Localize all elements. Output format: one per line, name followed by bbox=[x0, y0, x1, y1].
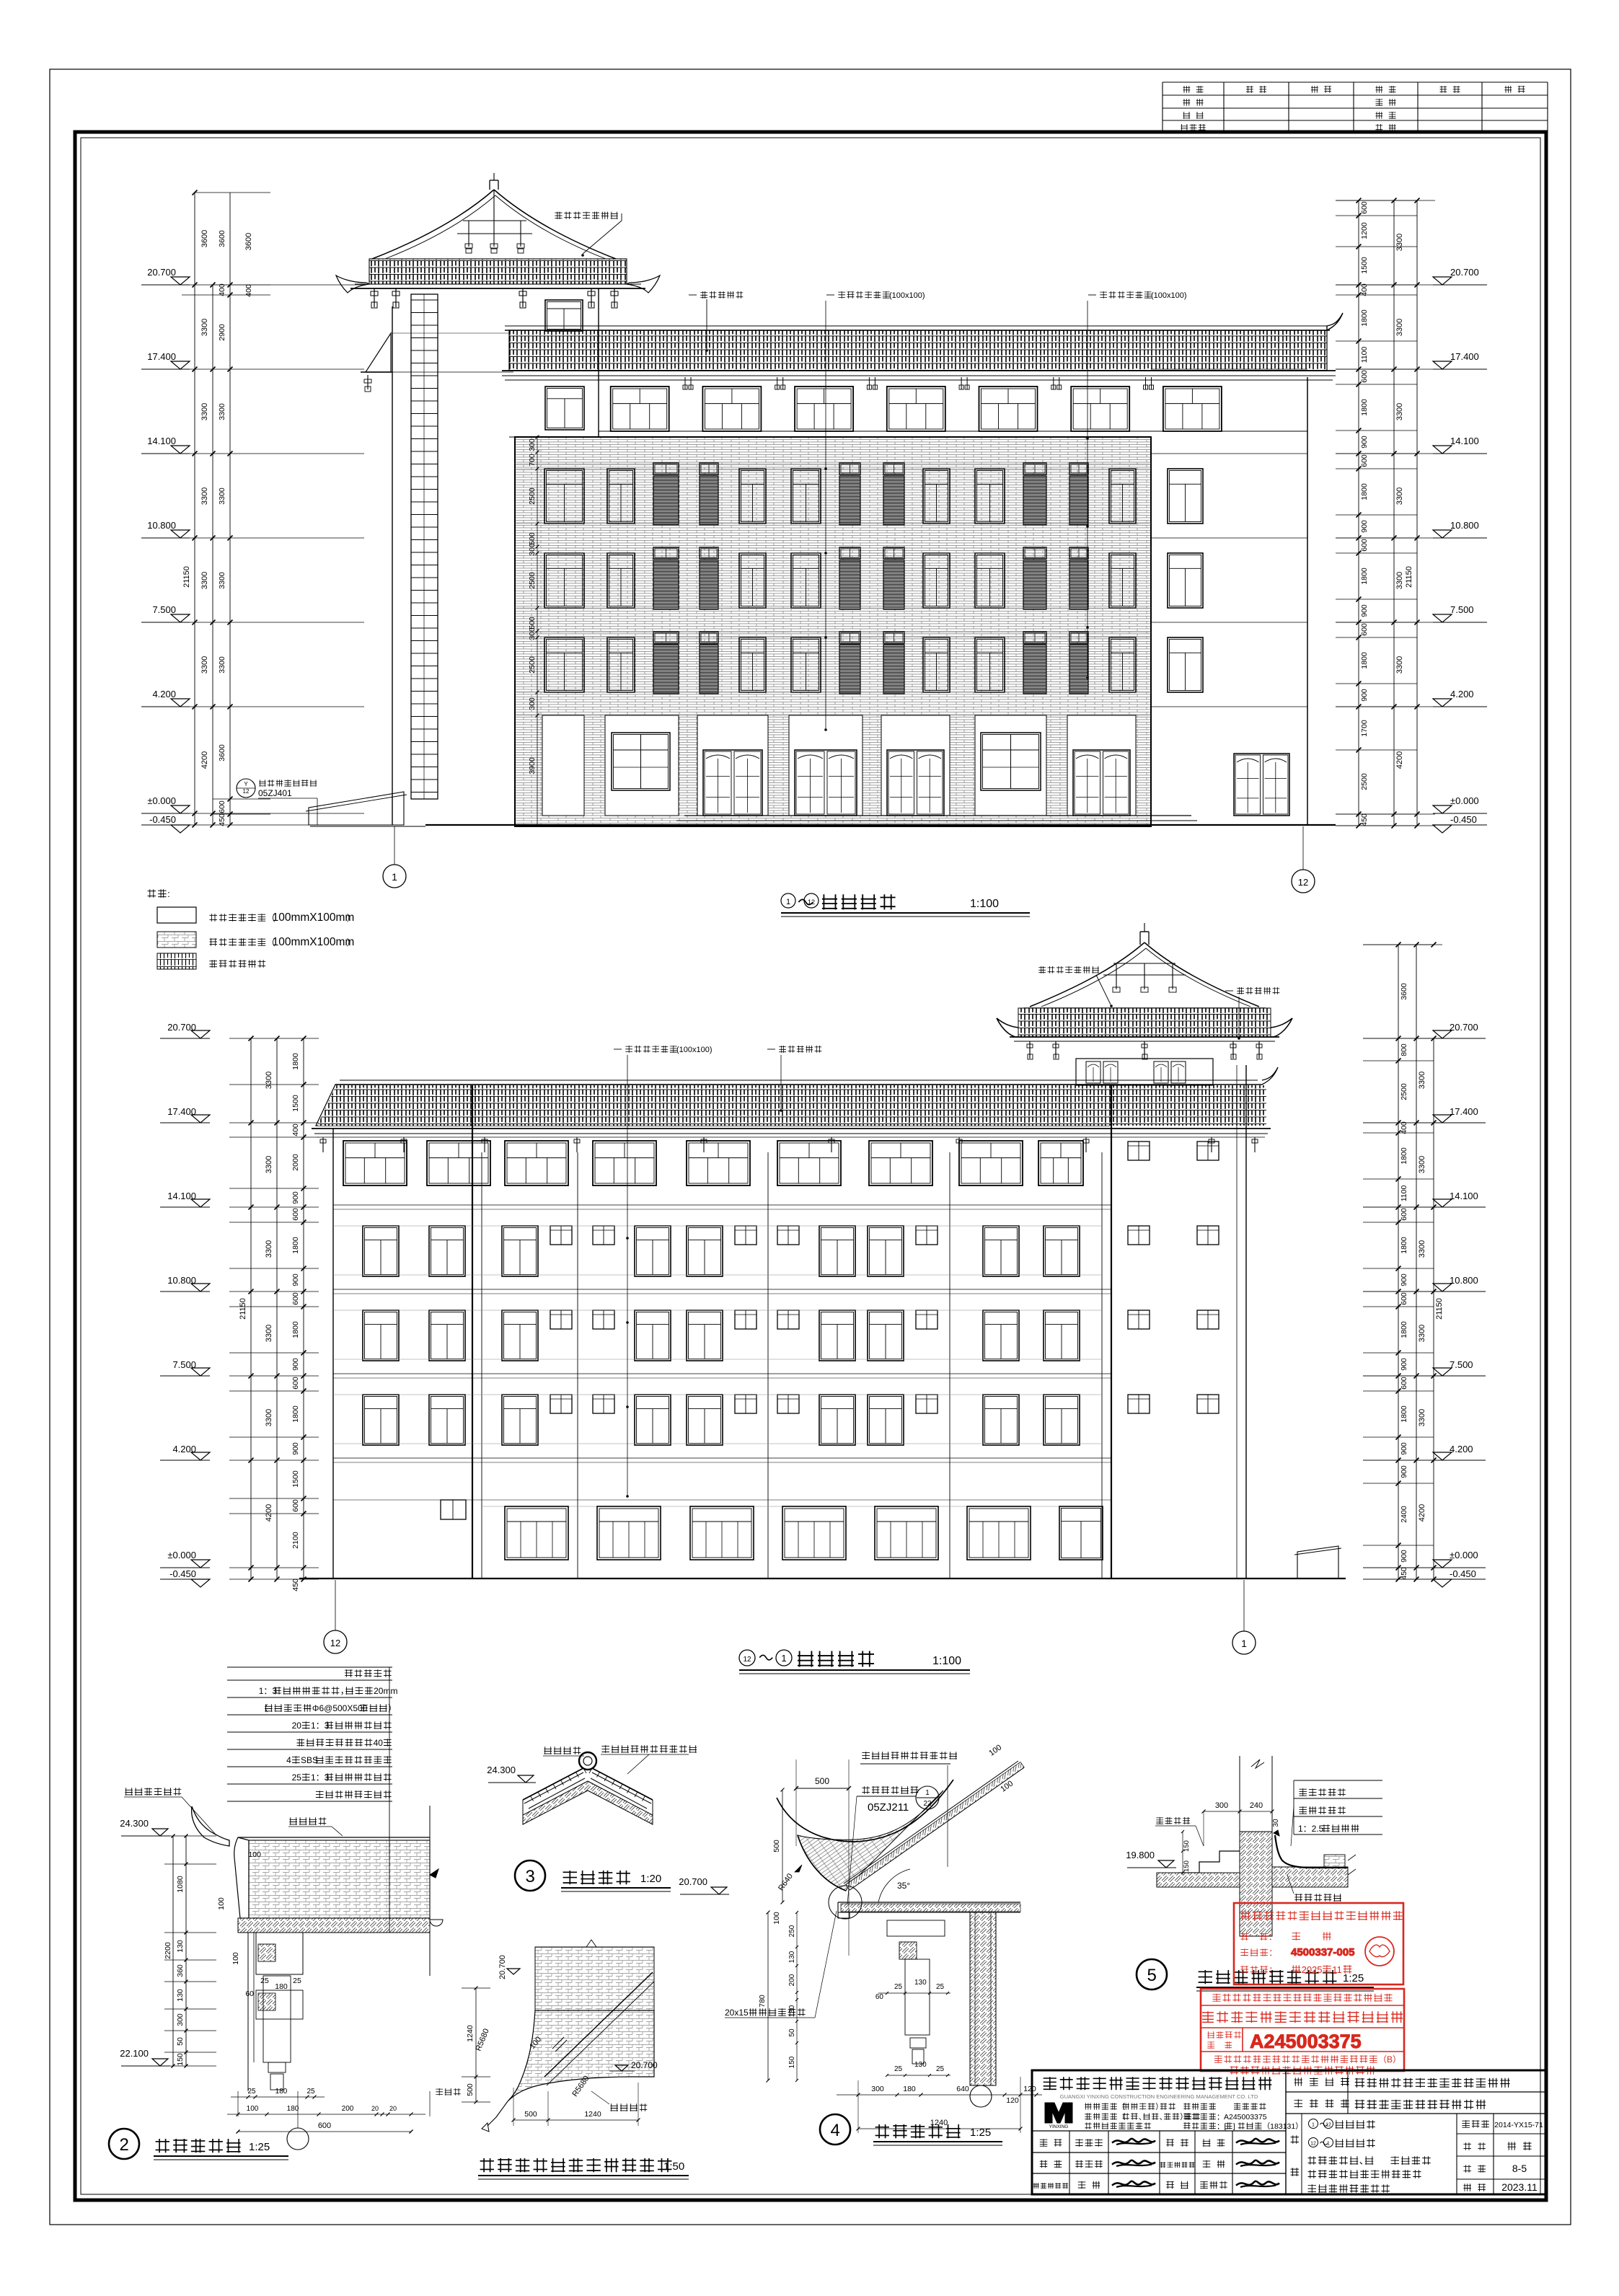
svg-text:360: 360 bbox=[176, 1964, 185, 1977]
svg-text:±0.000: ±0.000 bbox=[167, 1550, 196, 1560]
svg-text:900: 900 bbox=[1400, 1273, 1408, 1286]
svg-text:25: 25 bbox=[247, 2088, 256, 2096]
svg-text:100: 100 bbox=[247, 2105, 259, 2113]
svg-text:900: 900 bbox=[1400, 1358, 1408, 1371]
svg-text:2500: 2500 bbox=[1360, 773, 1369, 790]
svg-text:22.100: 22.100 bbox=[120, 2048, 149, 2059]
svg-text:100: 100 bbox=[217, 1897, 226, 1910]
svg-text:100: 100 bbox=[772, 1912, 781, 1925]
svg-text:GUANGXI YINXING CONSTRUCTION E: GUANGXI YINXING CONSTRUCTION ENGINEERING… bbox=[1060, 2093, 1258, 2100]
svg-text:1800: 1800 bbox=[1360, 483, 1369, 500]
svg-text:3600: 3600 bbox=[218, 230, 226, 247]
svg-text:900: 900 bbox=[291, 1442, 300, 1455]
svg-text:2014-YX15-71: 2014-YX15-71 bbox=[1494, 2121, 1543, 2129]
svg-text:1：3: 1：3 bbox=[311, 1721, 330, 1731]
svg-text:800: 800 bbox=[1400, 1043, 1408, 1056]
svg-text:1:25: 1:25 bbox=[249, 2141, 270, 2153]
svg-text:3300: 3300 bbox=[218, 403, 226, 420]
svg-text:1:100: 1:100 bbox=[970, 898, 999, 910]
svg-text:1:20: 1:20 bbox=[640, 1873, 661, 1885]
svg-text:3300: 3300 bbox=[1418, 1409, 1426, 1426]
svg-text:900: 900 bbox=[1400, 1550, 1408, 1563]
svg-text:19.800: 19.800 bbox=[1126, 1850, 1155, 1860]
svg-text:400: 400 bbox=[218, 283, 226, 296]
svg-text:-0.450: -0.450 bbox=[1450, 1568, 1476, 1579]
svg-text:1800: 1800 bbox=[1400, 1321, 1408, 1338]
svg-text:：: ： bbox=[1217, 2113, 1225, 2121]
svg-text:8-5: 8-5 bbox=[1512, 2163, 1527, 2174]
svg-text:1100: 1100 bbox=[1400, 1185, 1408, 1202]
svg-text:300: 300 bbox=[1215, 1801, 1228, 1810]
svg-text:200: 200 bbox=[342, 2105, 354, 2113]
svg-text:300: 300 bbox=[871, 2085, 884, 2093]
svg-text:12: 12 bbox=[1298, 877, 1308, 888]
svg-text:21150: 21150 bbox=[239, 1298, 247, 1320]
svg-text:1：3: 1：3 bbox=[311, 1772, 330, 1783]
svg-text:600: 600 bbox=[1360, 201, 1369, 214]
svg-text:450: 450 bbox=[218, 813, 226, 826]
svg-text:130: 130 bbox=[176, 1940, 185, 1953]
svg-text:25: 25 bbox=[260, 1977, 269, 1985]
svg-text:、: 、 bbox=[1359, 2155, 1369, 2166]
svg-text:1800: 1800 bbox=[1360, 568, 1369, 585]
svg-text:4500337-005: 4500337-005 bbox=[1291, 1946, 1354, 1959]
svg-text:1：2.5: 1：2.5 bbox=[1298, 1824, 1324, 1834]
svg-text:450: 450 bbox=[1400, 1567, 1408, 1580]
svg-text:1:25: 1:25 bbox=[970, 2127, 991, 2139]
svg-text:5: 5 bbox=[1147, 1966, 1157, 1985]
svg-text:240: 240 bbox=[1250, 1801, 1263, 1810]
svg-text:(100x100): (100x100) bbox=[889, 291, 925, 300]
svg-text:500: 500 bbox=[524, 2110, 537, 2119]
svg-text:14.100: 14.100 bbox=[1450, 436, 1479, 446]
svg-text:1: 1 bbox=[1312, 2123, 1315, 2128]
svg-text:600: 600 bbox=[1360, 370, 1369, 383]
svg-text:1800: 1800 bbox=[1400, 1405, 1408, 1423]
svg-text:900: 900 bbox=[1360, 520, 1369, 533]
svg-text:12: 12 bbox=[243, 788, 250, 795]
svg-text:）: ） bbox=[347, 913, 356, 923]
svg-text:3300: 3300 bbox=[265, 1409, 273, 1426]
svg-text:3: 3 bbox=[526, 1867, 535, 1886]
svg-text:150: 150 bbox=[788, 2056, 796, 2068]
svg-text:2500: 2500 bbox=[528, 487, 537, 505]
svg-text:21150: 21150 bbox=[1405, 566, 1413, 588]
svg-text:3900: 3900 bbox=[528, 757, 537, 774]
svg-text:1: 1 bbox=[925, 1789, 930, 1797]
svg-text:2500: 2500 bbox=[528, 572, 537, 589]
svg-text:05ZJ211: 05ZJ211 bbox=[868, 1801, 909, 1814]
svg-text:4200: 4200 bbox=[265, 1504, 273, 1522]
svg-text:25: 25 bbox=[936, 1983, 945, 1991]
svg-text:450: 450 bbox=[291, 1578, 300, 1591]
svg-text:600: 600 bbox=[291, 1499, 300, 1512]
svg-text:130: 130 bbox=[914, 1979, 927, 1987]
svg-text:12: 12 bbox=[808, 898, 815, 906]
svg-text:1240: 1240 bbox=[466, 2025, 475, 2042]
svg-text:7.500: 7.500 bbox=[1450, 1359, 1473, 1370]
svg-text:21150: 21150 bbox=[182, 566, 191, 588]
svg-text:130: 130 bbox=[788, 1951, 796, 1963]
svg-text:1: 1 bbox=[392, 871, 397, 883]
svg-text:25: 25 bbox=[936, 2065, 945, 2073]
svg-text:4.200: 4.200 bbox=[1450, 1444, 1473, 1454]
svg-text:1: 1 bbox=[1241, 1638, 1247, 1649]
svg-text:10.800: 10.800 bbox=[1450, 520, 1479, 531]
svg-text:600: 600 bbox=[1400, 1292, 1408, 1305]
svg-text:500: 500 bbox=[466, 2083, 475, 2096]
svg-text:4200: 4200 bbox=[200, 751, 209, 769]
svg-text:1800: 1800 bbox=[291, 1405, 300, 1423]
svg-text:1800: 1800 bbox=[1400, 1147, 1408, 1165]
svg-text:3300: 3300 bbox=[265, 1240, 273, 1258]
svg-text:±0.000: ±0.000 bbox=[147, 795, 176, 806]
svg-text:20: 20 bbox=[371, 2105, 379, 2112]
svg-text:25: 25 bbox=[894, 1983, 903, 1991]
svg-text:4200: 4200 bbox=[1395, 751, 1404, 769]
svg-text:4.200: 4.200 bbox=[1450, 689, 1474, 699]
svg-text:3300: 3300 bbox=[1395, 572, 1404, 589]
svg-text:4: 4 bbox=[286, 1755, 291, 1765]
svg-text:±0.000: ±0.000 bbox=[1450, 795, 1479, 806]
svg-text:640: 640 bbox=[956, 2085, 969, 2093]
svg-text:3300: 3300 bbox=[218, 487, 226, 505]
svg-text:1800: 1800 bbox=[1360, 399, 1369, 416]
svg-text:600: 600 bbox=[291, 1208, 300, 1221]
svg-text:100: 100 bbox=[248, 1850, 261, 1859]
svg-text:1:25: 1:25 bbox=[1343, 1972, 1364, 1984]
svg-text:3300: 3300 bbox=[200, 403, 209, 420]
svg-text:600: 600 bbox=[1400, 1208, 1408, 1221]
svg-text:20.700: 20.700 bbox=[679, 1876, 707, 1887]
svg-text:2500: 2500 bbox=[1400, 1083, 1408, 1100]
svg-text:500: 500 bbox=[815, 1776, 829, 1786]
svg-text:1:50: 1:50 bbox=[663, 2160, 684, 2173]
svg-text:130: 130 bbox=[176, 1989, 185, 2002]
svg-text:14.100: 14.100 bbox=[1450, 1191, 1478, 1201]
svg-text:180: 180 bbox=[275, 1982, 288, 1991]
svg-text:1080: 1080 bbox=[176, 1876, 185, 1893]
svg-text:(100x100): (100x100) bbox=[1151, 291, 1187, 300]
svg-text:：: ： bbox=[1269, 1948, 1277, 1958]
svg-text:200: 200 bbox=[788, 1974, 796, 1986]
svg-text:±0.000: ±0.000 bbox=[1450, 1550, 1478, 1560]
svg-text:600: 600 bbox=[1360, 454, 1369, 467]
svg-text:3300: 3300 bbox=[265, 1156, 273, 1173]
svg-text:）: ） bbox=[347, 937, 356, 948]
svg-text:50: 50 bbox=[176, 2037, 185, 2046]
svg-text:2200: 2200 bbox=[164, 1942, 172, 1959]
svg-text:25: 25 bbox=[293, 1977, 301, 1985]
svg-text:20.700: 20.700 bbox=[1450, 1022, 1478, 1033]
svg-text:4200: 4200 bbox=[1418, 1504, 1426, 1522]
svg-text:2: 2 bbox=[120, 2135, 129, 2155]
svg-text:900: 900 bbox=[1360, 689, 1369, 702]
svg-text:500: 500 bbox=[528, 532, 537, 545]
svg-text:（183131）: （183131） bbox=[1263, 2122, 1303, 2131]
svg-text:700: 700 bbox=[528, 454, 537, 467]
svg-text:4.200: 4.200 bbox=[172, 1444, 196, 1454]
svg-text:3300: 3300 bbox=[265, 1072, 273, 1089]
svg-text:1800: 1800 bbox=[291, 1237, 300, 1254]
svg-text:2100: 2100 bbox=[291, 1532, 300, 1549]
svg-text:3300: 3300 bbox=[200, 656, 209, 674]
svg-text:05ZJ401: 05ZJ401 bbox=[258, 788, 292, 798]
svg-text:Y: Y bbox=[244, 781, 248, 787]
svg-text:7.500: 7.500 bbox=[172, 1359, 196, 1370]
svg-text:1100: 1100 bbox=[1360, 347, 1369, 363]
svg-text:1:100: 1:100 bbox=[932, 1655, 961, 1667]
svg-text:2025: 2025 bbox=[1302, 1964, 1323, 1975]
svg-text:300: 300 bbox=[528, 697, 537, 710]
svg-text:3300: 3300 bbox=[218, 656, 226, 674]
svg-text:1: 1 bbox=[786, 898, 790, 906]
svg-text:1: 1 bbox=[781, 1653, 786, 1664]
svg-text:25: 25 bbox=[306, 2088, 315, 2096]
svg-text::: : bbox=[167, 888, 170, 899]
svg-text:3300: 3300 bbox=[1418, 1156, 1426, 1173]
svg-text:11: 11 bbox=[1332, 1964, 1342, 1975]
svg-text:35°: 35° bbox=[897, 1881, 910, 1891]
svg-text:3300: 3300 bbox=[1395, 319, 1404, 336]
svg-text:400: 400 bbox=[291, 1123, 300, 1136]
svg-text:-0.450: -0.450 bbox=[169, 1568, 196, 1579]
svg-text:20.700: 20.700 bbox=[147, 267, 176, 278]
svg-text:600: 600 bbox=[291, 1292, 300, 1305]
svg-text:2900: 2900 bbox=[218, 324, 226, 341]
svg-text:100: 100 bbox=[231, 1952, 240, 1965]
svg-text:1800: 1800 bbox=[291, 1053, 300, 1070]
svg-text:20mm: 20mm bbox=[374, 1686, 397, 1696]
svg-text:（B）: （B） bbox=[1378, 2054, 1401, 2065]
svg-text:3300: 3300 bbox=[1395, 403, 1404, 420]
svg-text:600: 600 bbox=[318, 2121, 331, 2130]
svg-text:400: 400 bbox=[1400, 1121, 1408, 1134]
svg-text:2023.11: 2023.11 bbox=[1501, 2181, 1538, 2193]
svg-text:1500: 1500 bbox=[291, 1470, 300, 1488]
svg-text:150: 150 bbox=[176, 2053, 185, 2066]
svg-text:Φ6@500X500: Φ6@500X500 bbox=[312, 1703, 368, 1713]
svg-text:3300: 3300 bbox=[1418, 1325, 1426, 1342]
svg-text:17.400: 17.400 bbox=[147, 351, 176, 362]
svg-text:1700: 1700 bbox=[1360, 720, 1369, 737]
svg-text:25: 25 bbox=[894, 2065, 903, 2073]
svg-text:7.500: 7.500 bbox=[152, 604, 176, 615]
svg-text:20x15: 20x15 bbox=[725, 2008, 749, 2018]
svg-text:22: 22 bbox=[923, 1800, 932, 1808]
svg-text:4.200: 4.200 bbox=[152, 689, 176, 699]
svg-text:900: 900 bbox=[1360, 436, 1369, 449]
svg-text:180: 180 bbox=[287, 2105, 299, 2113]
svg-text:600: 600 bbox=[1400, 1377, 1408, 1390]
svg-text:3300: 3300 bbox=[1395, 656, 1404, 674]
svg-text:7.500: 7.500 bbox=[1450, 604, 1474, 615]
svg-text:2500: 2500 bbox=[528, 656, 537, 674]
svg-text:780: 780 bbox=[758, 1995, 767, 2008]
svg-text:25: 25 bbox=[292, 1772, 302, 1783]
svg-text:12: 12 bbox=[743, 1656, 751, 1664]
svg-text:21150: 21150 bbox=[1435, 1298, 1444, 1320]
svg-text:17.400: 17.400 bbox=[1450, 1106, 1478, 1117]
svg-text:1500: 1500 bbox=[1360, 257, 1369, 274]
svg-text:3300: 3300 bbox=[265, 1325, 273, 1342]
svg-text:100mmX100mm: 100mmX100mm bbox=[273, 911, 355, 924]
svg-text:30: 30 bbox=[1272, 1819, 1280, 1827]
svg-text:20.700: 20.700 bbox=[1450, 267, 1479, 278]
svg-text:1: 1 bbox=[1327, 2142, 1330, 2147]
svg-text:14.100: 14.100 bbox=[147, 436, 176, 446]
svg-text:900: 900 bbox=[291, 1191, 300, 1204]
svg-text:1200: 1200 bbox=[1360, 222, 1369, 239]
svg-text:（: （ bbox=[260, 1703, 268, 1713]
svg-text:1800: 1800 bbox=[1360, 309, 1369, 327]
svg-text:1240: 1240 bbox=[584, 2110, 601, 2119]
svg-text:900: 900 bbox=[291, 1358, 300, 1371]
svg-text:3600: 3600 bbox=[200, 230, 209, 247]
svg-text:3300: 3300 bbox=[200, 319, 209, 336]
svg-text:600: 600 bbox=[218, 800, 226, 813]
svg-text:(100x100): (100x100) bbox=[676, 1046, 713, 1054]
svg-text:120: 120 bbox=[1006, 2096, 1019, 2105]
svg-text:：[: ：[ bbox=[1217, 2122, 1227, 2131]
svg-text:450: 450 bbox=[1360, 813, 1369, 826]
svg-text:180: 180 bbox=[903, 2085, 916, 2093]
svg-text:1800: 1800 bbox=[1400, 1237, 1408, 1254]
svg-text:A245003375: A245003375 bbox=[1224, 2113, 1267, 2121]
svg-text:300: 300 bbox=[528, 438, 537, 451]
svg-text:3300: 3300 bbox=[200, 572, 209, 589]
svg-text:60: 60 bbox=[875, 1993, 884, 2001]
svg-text:300: 300 bbox=[176, 2013, 185, 2026]
svg-text:40: 40 bbox=[374, 1738, 384, 1748]
svg-text:3300: 3300 bbox=[1395, 487, 1404, 505]
svg-text:900: 900 bbox=[1360, 604, 1369, 617]
svg-text:1：3: 1：3 bbox=[259, 1686, 278, 1696]
svg-text:250: 250 bbox=[788, 1925, 796, 1937]
svg-text:900: 900 bbox=[1400, 1465, 1408, 1478]
svg-text:4: 4 bbox=[831, 2121, 840, 2140]
svg-text:3600: 3600 bbox=[244, 233, 253, 250]
svg-text:A245003375: A245003375 bbox=[1250, 2031, 1362, 2052]
svg-text:3300: 3300 bbox=[200, 487, 209, 505]
svg-text:17.400: 17.400 bbox=[1450, 351, 1479, 362]
svg-text:SBS: SBS bbox=[301, 1755, 318, 1765]
svg-text:500: 500 bbox=[772, 1840, 781, 1853]
svg-text:180: 180 bbox=[275, 2088, 288, 2096]
svg-text:900: 900 bbox=[1400, 1442, 1408, 1455]
svg-text:500: 500 bbox=[528, 617, 537, 630]
svg-text:100mmX100mm: 100mmX100mm bbox=[273, 936, 355, 948]
svg-text:2400: 2400 bbox=[1400, 1506, 1408, 1523]
svg-text:120: 120 bbox=[1023, 2085, 1036, 2093]
svg-text:130: 130 bbox=[914, 2061, 927, 2069]
svg-text:20.700: 20.700 bbox=[498, 1955, 507, 1979]
svg-text:1800: 1800 bbox=[1360, 652, 1369, 669]
svg-text:-0.450: -0.450 bbox=[1450, 814, 1477, 825]
svg-text:24.300: 24.300 bbox=[120, 1818, 149, 1829]
svg-text:3300: 3300 bbox=[1418, 1240, 1426, 1258]
svg-text:20: 20 bbox=[389, 2105, 397, 2112]
svg-text:1500: 1500 bbox=[291, 1095, 300, 1112]
svg-text:3600: 3600 bbox=[1400, 983, 1408, 1000]
svg-text:60: 60 bbox=[245, 1990, 254, 1998]
svg-text:24.300: 24.300 bbox=[487, 1765, 516, 1775]
svg-text:YINXING: YINXING bbox=[1049, 2124, 1069, 2129]
svg-text:50: 50 bbox=[788, 2028, 796, 2037]
svg-text:12: 12 bbox=[330, 1638, 340, 1648]
svg-text:1800: 1800 bbox=[291, 1321, 300, 1338]
svg-text:3600: 3600 bbox=[218, 744, 226, 761]
svg-text:：: ： bbox=[1269, 1965, 1277, 1975]
svg-text:20: 20 bbox=[292, 1721, 302, 1731]
svg-text:-0.450: -0.450 bbox=[149, 814, 176, 825]
svg-text:600: 600 bbox=[1360, 539, 1369, 552]
svg-text:，: ， bbox=[340, 1686, 349, 1696]
svg-text:900: 900 bbox=[291, 1273, 300, 1286]
svg-text:10.800: 10.800 bbox=[1450, 1275, 1478, 1286]
svg-text:10.800: 10.800 bbox=[147, 520, 176, 531]
svg-text:3300: 3300 bbox=[1418, 1072, 1426, 1089]
svg-text:12: 12 bbox=[1325, 2123, 1331, 2128]
svg-text:400: 400 bbox=[1360, 283, 1369, 296]
svg-text:12: 12 bbox=[1310, 2142, 1316, 2147]
svg-text:3300: 3300 bbox=[218, 572, 226, 589]
svg-text:150: 150 bbox=[1183, 1860, 1191, 1872]
svg-text:600: 600 bbox=[1360, 623, 1369, 636]
svg-text:：: ： bbox=[1269, 1932, 1277, 1942]
svg-text:]: ] bbox=[1233, 2122, 1235, 2131]
svg-text:3300: 3300 bbox=[1395, 234, 1404, 251]
svg-text:2000: 2000 bbox=[291, 1154, 300, 1171]
svg-text:130: 130 bbox=[788, 2005, 796, 2017]
svg-text:20.700: 20.700 bbox=[631, 2060, 658, 2070]
svg-text:600: 600 bbox=[291, 1377, 300, 1390]
